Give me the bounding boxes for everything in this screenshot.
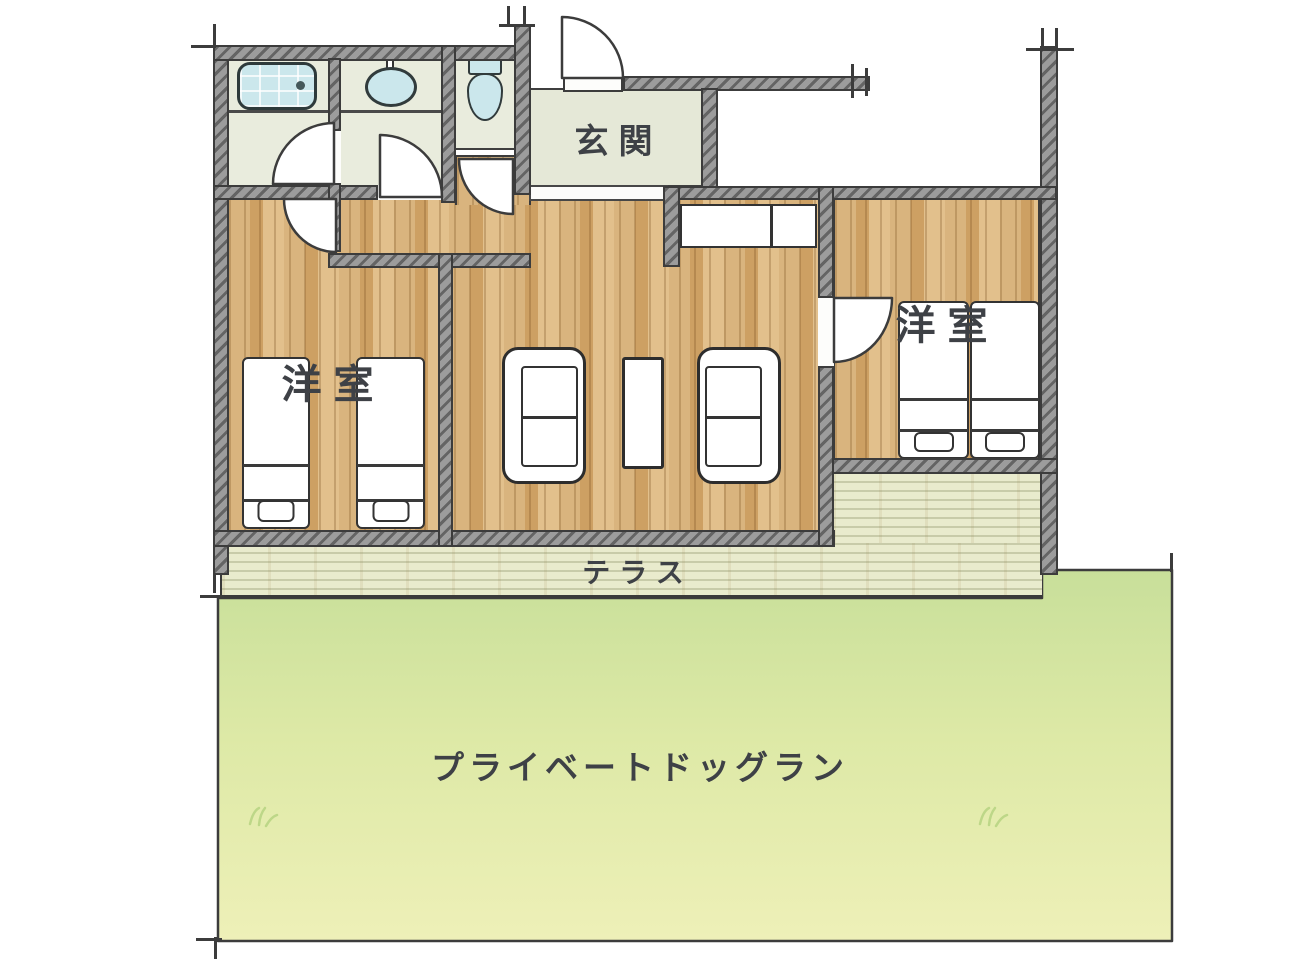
grass-tuft bbox=[250, 808, 1007, 826]
sketch-tick bbox=[865, 68, 868, 96]
wall bbox=[438, 253, 453, 547]
wall bbox=[1040, 46, 1058, 188]
wall bbox=[701, 88, 718, 200]
bedroom-right-doorway bbox=[818, 298, 834, 366]
coffee-table bbox=[622, 357, 664, 469]
pillow bbox=[372, 500, 409, 522]
wall bbox=[441, 45, 456, 203]
washroom-counter-line bbox=[341, 110, 442, 113]
wall bbox=[1040, 186, 1058, 575]
sketch-tick bbox=[499, 24, 535, 27]
sofa bbox=[697, 347, 781, 484]
wall bbox=[663, 186, 1057, 200]
washroom-doorway bbox=[378, 185, 441, 200]
bathtub-drain bbox=[296, 81, 305, 90]
sketch-tick bbox=[191, 45, 215, 48]
closet bbox=[680, 204, 817, 248]
wall bbox=[328, 58, 341, 131]
sketch-tick bbox=[1170, 553, 1173, 572]
sketch-tick bbox=[1026, 48, 1074, 51]
entrance-step bbox=[529, 185, 668, 201]
pillow bbox=[985, 432, 1025, 452]
wall bbox=[820, 458, 1058, 474]
floor-plan: 玄関 洋室 洋室 テラス プライベートドッグラン bbox=[0, 0, 1300, 975]
wall bbox=[514, 25, 531, 195]
closet-divider bbox=[770, 205, 773, 247]
sketch-tick bbox=[196, 938, 222, 941]
sketch-tick bbox=[213, 573, 216, 593]
pillow bbox=[258, 500, 295, 522]
bathtub bbox=[237, 62, 317, 110]
bedroom-left-label: 洋室 bbox=[256, 360, 411, 410]
sketch-tick bbox=[1055, 28, 1058, 48]
terrace-label: テラス bbox=[560, 553, 715, 593]
wall bbox=[213, 530, 835, 547]
wall bbox=[663, 186, 680, 267]
wall bbox=[213, 185, 378, 200]
bathroom-counter-line bbox=[229, 110, 329, 113]
wall bbox=[328, 253, 531, 268]
wall bbox=[213, 45, 229, 575]
sofa bbox=[502, 347, 586, 484]
sketch-tick bbox=[1041, 28, 1044, 48]
pillow bbox=[914, 432, 954, 452]
sketch-tick bbox=[200, 595, 224, 598]
entrance-label: 玄関 bbox=[536, 120, 701, 164]
entrance-door-swing bbox=[562, 17, 623, 78]
wall bbox=[328, 183, 341, 252]
wall bbox=[623, 76, 870, 91]
sofa-cushion bbox=[521, 366, 578, 467]
sofa-cushion bbox=[705, 366, 762, 467]
entrance-door-sill bbox=[563, 76, 623, 92]
wall bbox=[818, 366, 834, 547]
dog-run-label: プライベートドッグラン bbox=[420, 744, 860, 792]
bedroom-right-label: 洋室 bbox=[870, 301, 1025, 351]
sketch-tick bbox=[851, 64, 854, 98]
wall bbox=[818, 186, 834, 298]
wall bbox=[213, 45, 531, 61]
bathroom-doorway bbox=[328, 131, 341, 185]
washbasin-sink bbox=[365, 67, 417, 107]
